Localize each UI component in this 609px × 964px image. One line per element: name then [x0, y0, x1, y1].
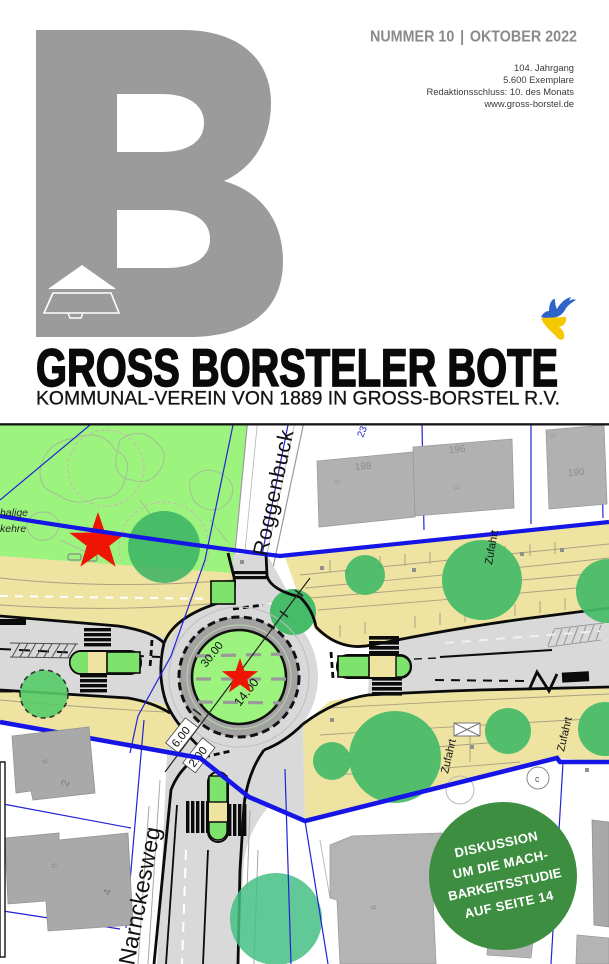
svg-text:104. Jahrgang: 104. Jahrgang	[514, 62, 574, 73]
svg-text:KOMMUNAL-VEREIN VON 1889 IN GR: KOMMUNAL-VEREIN VON 1889 IN GROSS-BORSTE…	[36, 388, 560, 410]
svg-text:196: 196	[448, 444, 466, 456]
svg-text:www.gross-borstel.de: www.gross-borstel.de	[483, 98, 574, 109]
svg-text:c: c	[535, 774, 540, 784]
svg-text:5.600 Exemplare: 5.600 Exemplare	[503, 74, 574, 85]
svg-text:Redaktionsschluss: 10. des Mon: Redaktionsschluss: 10. des Monats	[427, 86, 575, 97]
svg-text:NUMMER 10 | OKTOBER 2022: NUMMER 10 | OKTOBER 2022	[370, 29, 577, 46]
svg-text:198: 198	[354, 461, 372, 473]
svg-text:kehre: kehre	[0, 523, 26, 535]
svg-text:halige: halige	[0, 507, 28, 519]
svg-text:190: 190	[567, 467, 585, 479]
